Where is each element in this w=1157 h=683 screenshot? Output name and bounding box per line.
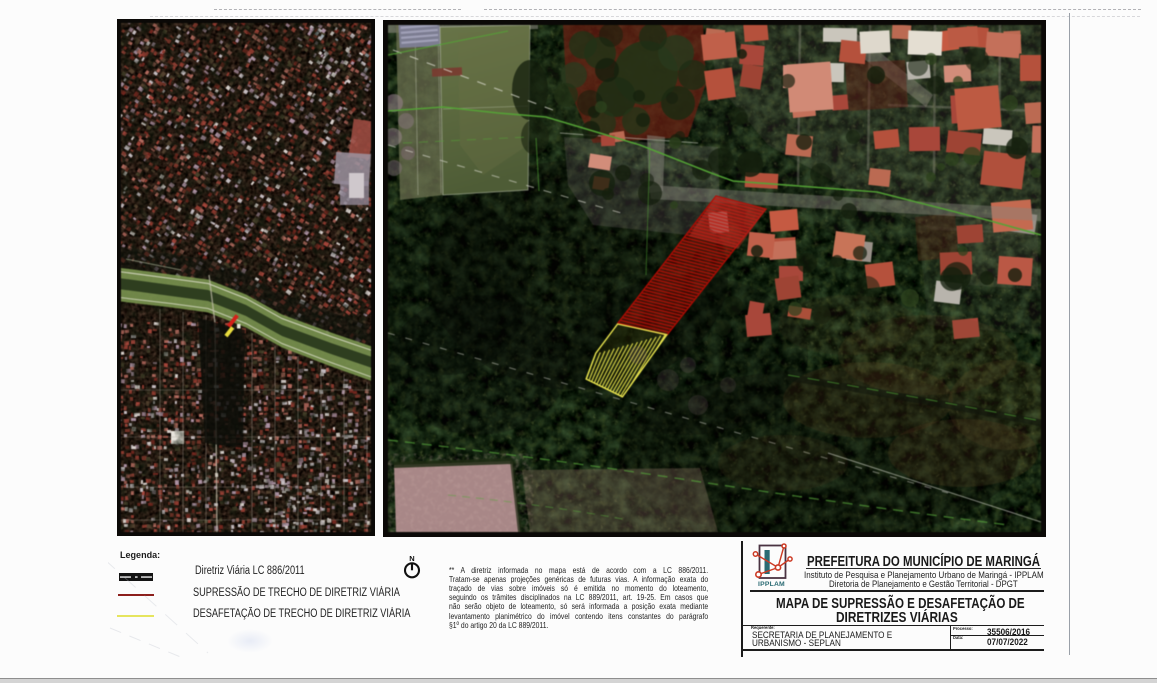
svg-text:N: N xyxy=(409,554,414,563)
svg-text:IPPLAM: IPPLAM xyxy=(758,581,785,588)
